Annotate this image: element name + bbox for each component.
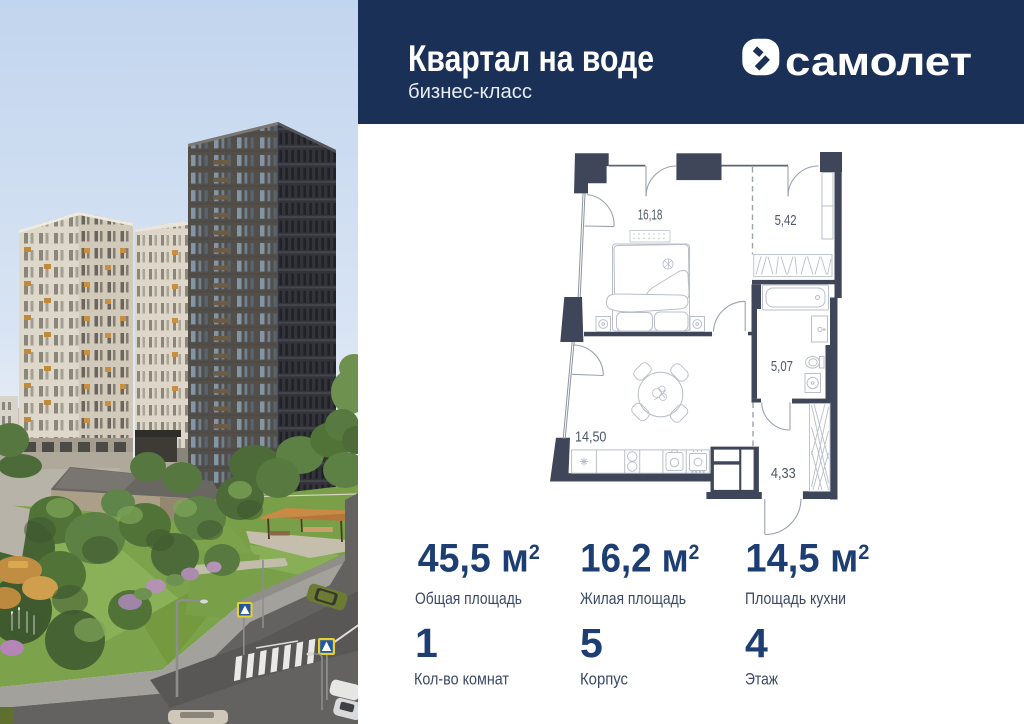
svg-text:14,5 м2: 14,5 м2 [745,537,869,581]
svg-text:14,50: 14,50 [575,428,606,445]
svg-text:1: 1 [415,620,438,666]
svg-text:Площадь кухни: Площадь кухни [745,589,846,608]
svg-text:Этаж: Этаж [745,670,779,689]
svg-text:бизнес-класс: бизнес-класс [408,81,532,103]
svg-text:5,42: 5,42 [775,212,797,229]
svg-text:самолет: самолет [785,40,972,84]
svg-text:5: 5 [580,620,603,666]
svg-text:5,07: 5,07 [771,358,793,375]
svg-text:Общая площадь: Общая площадь [415,589,522,608]
svg-text:16,2 м2: 16,2 м2 [580,537,699,581]
svg-text:Жилая площадь: Жилая площадь [580,589,686,608]
svg-text:16,18: 16,18 [638,207,663,224]
svg-text:4: 4 [745,620,768,666]
svg-text:Кол-во комнат: Кол-во комнат [414,670,509,689]
svg-text:4,33: 4,33 [771,465,796,482]
svg-text:Корпус: Корпус [580,670,628,689]
svg-text:45,5 м2: 45,5 м2 [418,537,540,581]
svg-text:Квартал на воде: Квартал на воде [408,37,654,79]
